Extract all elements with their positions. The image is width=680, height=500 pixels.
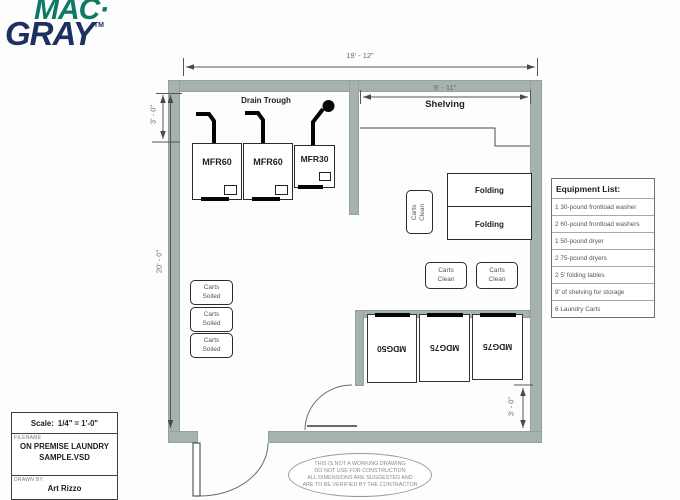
dryer-mdg50: MDG50 [367,314,417,383]
equipment-list-item: 2 5' folding tables [552,266,654,283]
drain-trough-label: Drain Trough [221,96,311,105]
scale-label: Scale: [31,419,54,428]
washer-control-square [319,172,331,181]
dryer-base-bar [427,313,463,317]
cart-label-line2: Soiled [202,346,220,354]
cart-label-line2: Clean [489,276,506,284]
drain-outlet-dot [323,100,335,112]
cart-label-line2: Clean [419,204,427,221]
logo-gray: GRAYTM [5,15,104,53]
disclaimer-line2: DO NOT USE FOR CONSTRUCTION [314,468,405,475]
cart-label-line1: Carts [411,204,419,221]
shelving-outline [360,128,530,146]
dryer-base-bar [480,313,516,317]
scale-row: Scale: 1/4" = 1'-0" [12,413,117,434]
washer-control-square [224,185,237,195]
washer-mfr60-1: MFR60 [192,143,242,200]
wall-dryer-alcove-stub [355,310,364,386]
filename-field-label: FILENAME [12,434,117,441]
washer-label: MFR60 [193,157,241,167]
disclaimer-line4: ARE TO BE VERIFIED BY THE CONTRACTOR [302,482,417,489]
cart-label-line1: Carts [202,337,220,345]
logo-gray-text: GRAY [5,15,94,52]
cart-label: Carts Soiled [202,311,220,328]
wall-divider-shelving [349,80,359,215]
scale-value: 1/4" = 1'-0" [58,419,98,428]
shelving-label: Shelving [405,99,485,110]
dryer-label: MDG75 [430,343,459,353]
washer-control-square [275,185,288,195]
filename-value: ON PREMISE LAUNDRY SAMPLE.VSD [12,441,117,464]
trademark-symbol: TM [94,22,104,29]
equipment-list-title: Equipment List: [552,179,654,198]
washer-base-bar [252,197,280,201]
filename-line1: ON PREMISE LAUNDRY [12,441,117,452]
dryer-mdg75-2: MDG75 [472,314,523,380]
equipment-list: Equipment List: 1 30-pound frontload was… [551,178,655,318]
cart-label: Carts Clean [411,204,428,221]
drain-pipe-washer-2 [245,113,263,144]
cart-label: Carts Soiled [202,284,220,301]
wall-bottom-left-stub [168,431,198,443]
cart-soiled-2: Carts Soiled [190,307,233,332]
washer-label: MFR30 [295,154,334,164]
dim-label-shelving-width: 9' - 11" [410,83,480,92]
equipment-list-item: 1 30-pound frontload washer [552,198,654,215]
dryer-label: MDG50 [377,344,406,354]
dryer-label: MDG75 [483,342,512,352]
washer-base-bar [298,185,323,189]
equipment-list-item: 2 60-pound frontload washers [552,215,654,232]
title-block: Scale: 1/4" = 1'-0" FILENAME ON PREMISE … [11,412,118,500]
drain-pipe-washer-3 [313,109,323,146]
cart-label-line2: Clean [438,276,455,284]
cart-clean-1: Carts Clean [425,262,467,289]
equipment-list-item: 1 50-pound dryer [552,232,654,249]
equipment-list-item: 9' of shelving for storage [552,283,654,300]
equipment-list-item: 6 Laundry Carts [552,300,654,317]
washer-base-bar [201,197,229,201]
drawn-by-value: Art Rizzo [12,483,117,494]
exterior-door-arc [200,443,268,496]
folding-tables: Folding Folding [447,173,532,240]
washer-label: MFR60 [244,157,292,167]
dim-label-top-width: 19' - 12" [320,51,400,60]
disclaimer-line3: ALL DIMENSIONS ARE SUGGESTED AND [307,475,412,482]
cart-label-line2: Soiled [202,320,220,328]
exterior-door-leaf [193,443,200,496]
wall-left [168,80,180,443]
cart-label: Carts Clean [438,267,455,284]
drain-pipe-washer-1 [196,114,214,144]
wall-right [530,80,542,443]
cart-label-line2: Soiled [202,293,220,301]
filename-line2: SAMPLE.VSD [12,452,117,463]
cart-label-line1: Carts [438,267,455,275]
folding-table-2: Folding [448,208,531,240]
cart-label-line1: Carts [489,267,506,275]
washer-mfr30: MFR30 [294,145,335,188]
dim-label-trough-depth: 3' - 0" [149,99,158,131]
cart-label: Carts Clean [489,267,506,284]
dim-label-dryer-clearance: 3' - 0" [507,391,516,423]
interior-door-arc [305,385,352,430]
drawn-by-section: DRAWN BY Art Rizzo [12,476,117,500]
cart-label-line1: Carts [202,284,220,292]
dryer-mdg75-1: MDG75 [419,314,470,382]
cart-clean-2: Carts Clean [476,262,518,289]
washer-mfr60-2: MFR60 [243,143,293,200]
dim-label-room-depth: 20' - 0" [155,244,164,280]
folding-table-1: Folding [448,174,531,207]
dryer-base-bar [375,313,410,317]
cart-soiled-3: Carts Soiled [190,333,233,358]
equipment-list-item: 2 75-pound dryers [552,249,654,266]
cart-label-line1: Carts [202,311,220,319]
cart-soiled-1: Carts Soiled [190,280,233,305]
wall-bottom [268,431,542,443]
disclaimer-line1: THIS IS NOT A WORKING DRAWING [314,461,405,468]
drawn-by-field-label: DRAWN BY [12,476,117,483]
cart-clean-rotated: Carts Clean [406,190,433,234]
disclaimer-note: THIS IS NOT A WORKING DRAWING DO NOT USE… [288,453,432,497]
cart-label: Carts Soiled [202,337,220,354]
filename-section: FILENAME ON PREMISE LAUNDRY SAMPLE.VSD [12,434,117,476]
